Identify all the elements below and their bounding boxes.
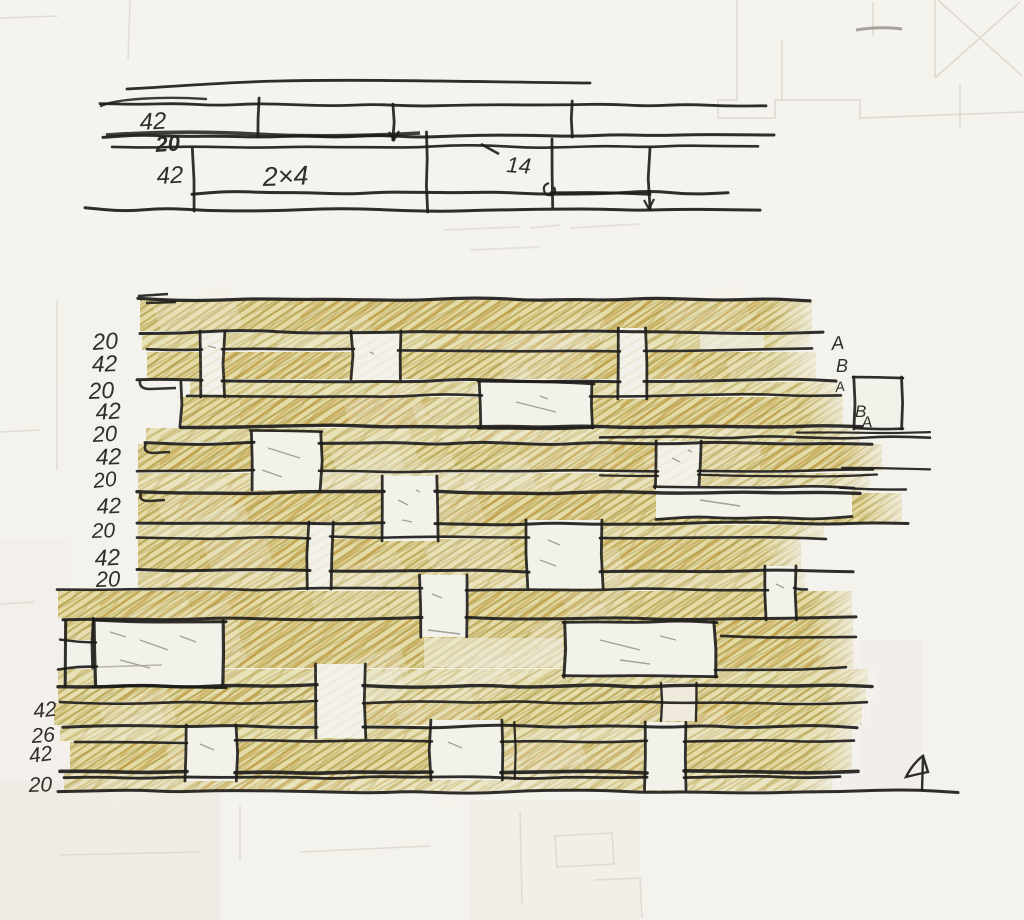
svg-text:20: 20 [27,773,52,797]
svg-text:2×4: 2×4 [261,160,309,192]
svg-text:42: 42 [96,493,122,519]
svg-text:20: 20 [154,130,182,157]
svg-text:42: 42 [95,443,122,470]
svg-text:14: 14 [506,152,532,179]
svg-text:42: 42 [91,350,118,377]
svg-text:42: 42 [156,162,184,190]
svg-text:20: 20 [91,468,118,493]
svg-text:42: 42 [27,742,54,768]
svg-text:20: 20 [94,566,121,592]
svg-text:20: 20 [90,519,115,543]
svg-text:A: A [829,333,845,355]
svg-text:42: 42 [32,698,58,723]
svg-text:A: A [860,414,873,432]
svg-text:B: B [836,356,848,376]
